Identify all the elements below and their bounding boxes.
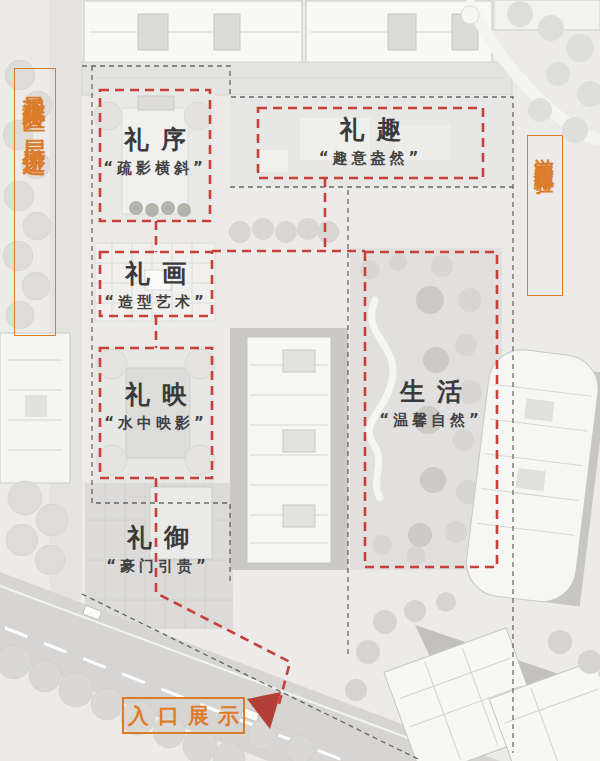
entrance-arrow [247,692,281,729]
zone-box-shenghuo [365,252,497,567]
left-label-line2: 层层递进 [20,121,51,137]
entrance-label-box: 入口展示 [122,697,245,734]
left-experience-label: 景观体验区 层层递进 [14,68,56,336]
right-label-line: 游园景观体验 [532,143,559,161]
entrance-label-text: 入口展示 [119,702,248,730]
zone-box-lihua [100,252,212,316]
connector-liying-entrance [156,478,290,704]
zone-box-liying [100,348,212,478]
annotation-overlay [0,0,600,761]
masterplan-figure: 景观体验区 层层递进 游园景观体验 礼序 “疏影横斜” 礼趣 “趣意盎然” 礼画… [0,0,600,761]
right-experience-label: 游园景观体验 [527,135,563,296]
zone-box-lixu [100,90,210,221]
zone-box-liqu [258,108,483,178]
left-label-line1: 景观体验区 [20,77,51,97]
